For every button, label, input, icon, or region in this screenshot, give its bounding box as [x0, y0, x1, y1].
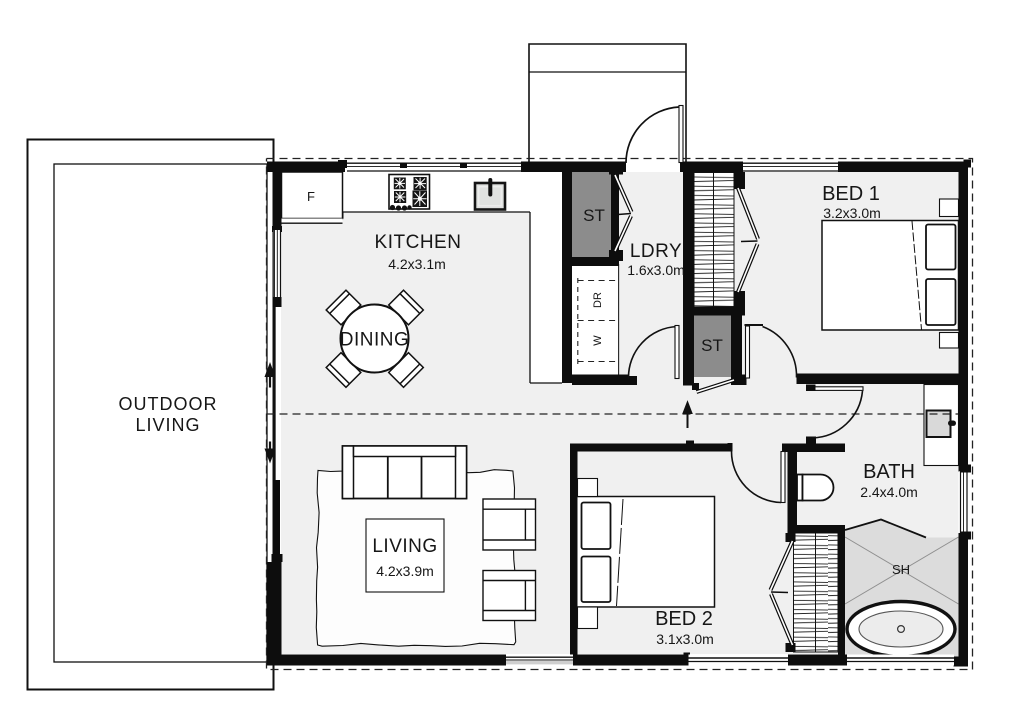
svg-text:BATH: BATH [863, 461, 915, 483]
svg-text:F: F [307, 189, 315, 204]
svg-text:BED 1: BED 1 [822, 183, 880, 205]
svg-text:4.2x3.1m: 4.2x3.1m [388, 256, 446, 272]
svg-text:W: W [592, 335, 604, 346]
svg-text:3.1x3.0m: 3.1x3.0m [656, 631, 714, 647]
svg-text:3.2x3.0m: 3.2x3.0m [823, 205, 881, 221]
svg-text:LIVING: LIVING [135, 415, 200, 435]
svg-text:1.6x3.0m: 1.6x3.0m [627, 262, 685, 278]
svg-text:2.4x4.0m: 2.4x4.0m [860, 484, 918, 500]
svg-text:ST: ST [701, 336, 723, 355]
svg-text:4.2x3.9m: 4.2x3.9m [376, 563, 434, 579]
svg-text:KITCHEN: KITCHEN [375, 232, 462, 253]
svg-text:BED 2: BED 2 [655, 608, 713, 630]
svg-text:LIVING: LIVING [372, 536, 437, 557]
svg-text:DR: DR [592, 292, 604, 308]
svg-text:ST: ST [583, 206, 605, 225]
svg-text:LDRY: LDRY [630, 241, 682, 262]
svg-text:OUTDOOR: OUTDOOR [119, 394, 218, 414]
svg-text:DINING: DINING [340, 330, 410, 351]
svg-text:SH: SH [892, 562, 910, 577]
